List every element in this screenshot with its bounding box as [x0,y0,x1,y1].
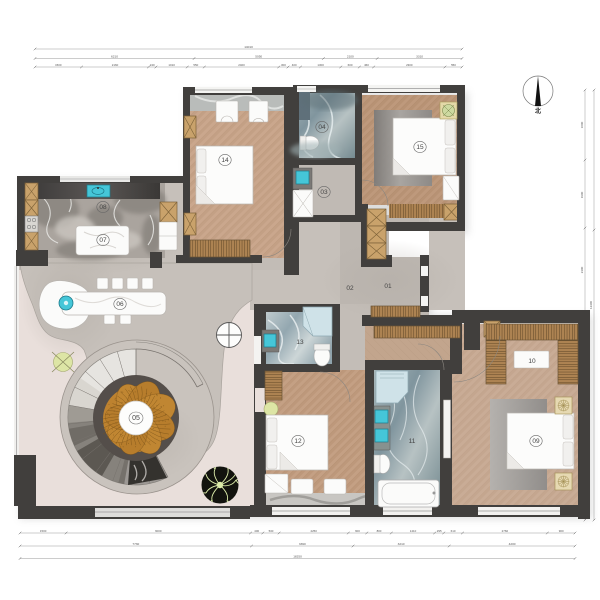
svg-text:1300: 1300 [317,63,324,67]
svg-text:550: 550 [451,63,456,67]
svg-text:3310: 3310 [416,54,423,58]
svg-text:1010: 1010 [168,63,175,67]
svg-text:400: 400 [292,63,297,67]
svg-text:05: 05 [132,415,140,422]
svg-text:08: 08 [99,204,107,211]
svg-text:06: 06 [116,301,124,308]
svg-text:12: 12 [294,438,302,445]
svg-text:530: 530 [269,529,274,533]
svg-text:14010: 14010 [244,45,253,49]
svg-text:10: 10 [528,358,536,365]
svg-text:4200: 4200 [509,542,516,546]
svg-text:240: 240 [150,63,155,67]
svg-text:5050: 5050 [255,54,262,58]
svg-text:07: 07 [99,237,107,244]
svg-text:1500: 1500 [55,63,62,67]
svg-text:295: 295 [437,529,442,533]
svg-text:1900: 1900 [580,191,584,198]
svg-text:2400: 2400 [238,63,245,67]
svg-text:2100: 2100 [347,54,354,58]
svg-text:2300: 2300 [406,63,413,67]
svg-text:2160: 2160 [112,63,119,67]
svg-text:02: 02 [346,285,354,292]
svg-text:550: 550 [193,63,198,67]
svg-text:610: 610 [451,529,456,533]
svg-text:1500: 1500 [40,529,47,533]
svg-text:14: 14 [221,157,229,164]
svg-text:3600: 3600 [580,121,584,128]
svg-text:04: 04 [318,124,326,131]
svg-text:3210: 3210 [398,542,405,546]
svg-text:460: 460 [364,63,369,67]
svg-text:13: 13 [296,339,304,346]
svg-text:03: 03 [320,189,328,196]
svg-text:400: 400 [254,529,259,533]
svg-text:11: 11 [409,438,416,445]
svg-text:2300: 2300 [580,266,584,273]
svg-text:3390: 3390 [299,542,306,546]
svg-text:6210: 6210 [111,54,118,58]
svg-text:北: 北 [535,107,541,115]
svg-text:1410: 1410 [410,529,417,533]
svg-text:01: 01 [384,283,392,290]
svg-text:6000: 6000 [155,529,162,533]
svg-text:300: 300 [281,63,286,67]
svg-text:800: 800 [377,529,382,533]
svg-text:2760: 2760 [502,529,509,533]
svg-text:18250: 18250 [293,554,302,558]
svg-text:15: 15 [416,144,424,151]
svg-text:600: 600 [355,529,360,533]
svg-text:12300: 12300 [589,301,593,309]
svg-text:09: 09 [532,438,540,445]
svg-text:900: 900 [559,529,564,533]
svg-text:600: 600 [348,63,353,67]
svg-text:2250: 2250 [310,529,317,533]
svg-text:7730: 7730 [132,542,139,546]
